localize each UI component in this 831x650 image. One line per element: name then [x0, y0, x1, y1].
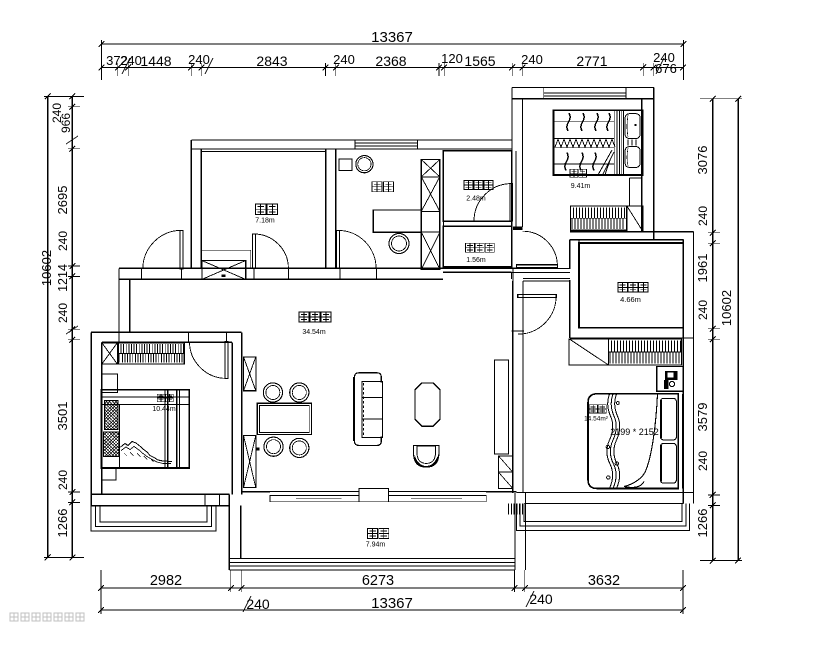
svg-text:1448: 1448: [140, 53, 171, 69]
svg-text:240: 240: [120, 53, 142, 68]
svg-text:7.94m: 7.94m: [366, 542, 386, 549]
svg-text:4.66m: 4.66m: [620, 295, 641, 304]
svg-text:120: 120: [441, 51, 463, 66]
svg-text:240: 240: [696, 206, 710, 226]
svg-text:1565: 1565: [464, 53, 495, 69]
svg-text:10.44m: 10.44m: [152, 406, 176, 413]
svg-text:7.18m: 7.18m: [255, 218, 275, 225]
svg-text:240: 240: [56, 470, 70, 490]
svg-text:240: 240: [333, 52, 355, 67]
svg-text:240: 240: [696, 300, 710, 320]
svg-text:1266: 1266: [695, 509, 710, 538]
svg-text:3579: 3579: [695, 403, 710, 432]
svg-text:2.48m: 2.48m: [466, 196, 486, 203]
svg-text:3632: 3632: [588, 573, 620, 589]
svg-text:13367: 13367: [371, 29, 413, 46]
svg-text:9.41m: 9.41m: [571, 183, 591, 190]
svg-text:240: 240: [56, 303, 70, 323]
svg-text:10602: 10602: [719, 290, 734, 326]
svg-text:1961: 1961: [695, 254, 710, 283]
svg-text:1.56m: 1.56m: [466, 257, 486, 264]
svg-text:6273: 6273: [362, 573, 394, 589]
svg-text:2199 * 2152: 2199 * 2152: [610, 427, 659, 437]
svg-text:2982: 2982: [150, 573, 182, 589]
svg-text:3501: 3501: [55, 402, 70, 431]
svg-text:2843: 2843: [256, 53, 287, 69]
svg-text:1266: 1266: [55, 509, 70, 538]
svg-text:240: 240: [188, 52, 210, 67]
svg-text:240: 240: [521, 52, 543, 67]
svg-text:2368: 2368: [375, 53, 406, 69]
svg-text:34.54m: 34.54m: [302, 329, 326, 336]
svg-text:13367: 13367: [371, 595, 413, 612]
svg-text:2771: 2771: [576, 53, 607, 69]
svg-text:2695: 2695: [55, 186, 70, 215]
svg-text:240: 240: [696, 451, 710, 471]
svg-text:14.54m²: 14.54m²: [584, 415, 609, 422]
svg-text:1214: 1214: [56, 264, 70, 292]
svg-text:3076: 3076: [695, 146, 710, 175]
svg-text:10602: 10602: [39, 250, 54, 286]
svg-text:240: 240: [56, 231, 70, 251]
svg-text:966: 966: [59, 113, 73, 133]
